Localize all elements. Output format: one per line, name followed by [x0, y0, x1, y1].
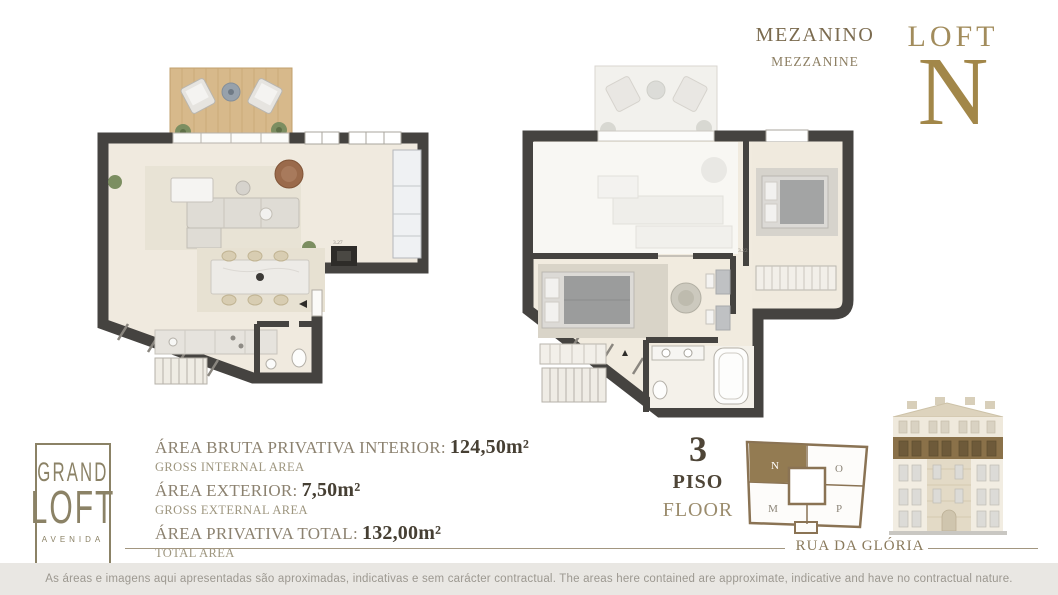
area-label-pt: ÁREA BRUTA PRIVATIVA INTERIOR:	[155, 438, 446, 457]
area-label-en: GROSS EXTERNAL AREA	[155, 503, 535, 518]
key-plan-unit-o: O	[835, 463, 843, 475]
plant	[108, 175, 122, 189]
toilet	[292, 349, 306, 367]
street-rule-left	[125, 548, 785, 549]
area-label-en: GROSS INTERNAL AREA	[155, 460, 535, 475]
logo-line2: LOFT	[31, 482, 116, 535]
balcony-terrace	[170, 68, 292, 142]
entry-door	[312, 290, 322, 316]
key-plan: N O M P	[737, 430, 879, 542]
plan-title-en: MEZZANINE	[742, 54, 888, 70]
area-row: ÁREA PRIVATIVA TOTAL: 132,00m² TOTAL ARE…	[155, 522, 535, 561]
key-plan-core	[789, 468, 825, 504]
unit-letter: N	[903, 50, 1003, 134]
mezzanine-floor-plan: 3.22	[518, 60, 863, 420]
floor-plan-sheet: 3.27	[0, 0, 1058, 595]
main-floor-plan: 3.27	[93, 62, 433, 422]
kitchen-cabinets	[393, 150, 421, 258]
floor-indicator: 3 PISO FLOOR	[657, 431, 739, 522]
window	[349, 132, 401, 144]
balcony-glass-wall	[598, 131, 714, 141]
plan-title: MEZANINO MEZZANINE	[742, 24, 888, 70]
area-value: 124,50m²	[450, 436, 529, 458]
area-row: ÁREA BRUTA PRIVATIVA INTERIOR: 124,50m² …	[155, 436, 535, 475]
window	[766, 130, 808, 142]
area-label-pt: ÁREA EXTERIOR:	[155, 481, 298, 500]
area-summary: ÁREA BRUTA PRIVATIVA INTERIOR: 124,50m² …	[155, 436, 535, 565]
coffee-table	[171, 178, 213, 202]
entrance-arch	[942, 510, 956, 531]
logo-line3: AVENIDA	[42, 535, 105, 544]
ghost-balcony	[595, 66, 717, 140]
floor-number: 3	[657, 431, 739, 467]
dimension-label: 3.22	[738, 248, 748, 254]
area-value: 7,50m²	[302, 479, 361, 501]
key-plan-unit-m: M	[768, 503, 778, 515]
street-rule-right	[928, 548, 1038, 549]
disclaimer-text: As áreas e imagens aqui apresentadas são…	[45, 573, 1012, 585]
bathroom	[646, 340, 754, 412]
second-bedroom	[752, 142, 842, 302]
key-plan-unit-p: P	[836, 503, 842, 515]
plan-title-pt: MEZANINO	[742, 24, 888, 47]
ghost-living-void	[533, 142, 738, 254]
area-value: 132,00m²	[362, 522, 441, 544]
area-label-pt: ÁREA PRIVATIVA TOTAL:	[155, 524, 358, 543]
disclaimer-bar: As áreas e imagens aqui apresentadas são…	[0, 563, 1058, 595]
dimension-label: 3.27	[333, 240, 343, 246]
floor-label-en: FLOOR	[657, 499, 739, 522]
grand-loft-avenida-logo: GRAND LOFT AVENIDA	[35, 443, 111, 565]
street-label: RUA DA GLÓRIA	[793, 538, 927, 555]
area-row: ÁREA EXTERIOR: 7,50m² GROSS EXTERNAL ARE…	[155, 479, 535, 518]
building-elevation	[885, 393, 1013, 538]
key-plan-unit-n: N	[771, 460, 779, 472]
unit-branding: LOFT N	[903, 20, 1003, 134]
floor-label-pt: PISO	[657, 471, 739, 494]
